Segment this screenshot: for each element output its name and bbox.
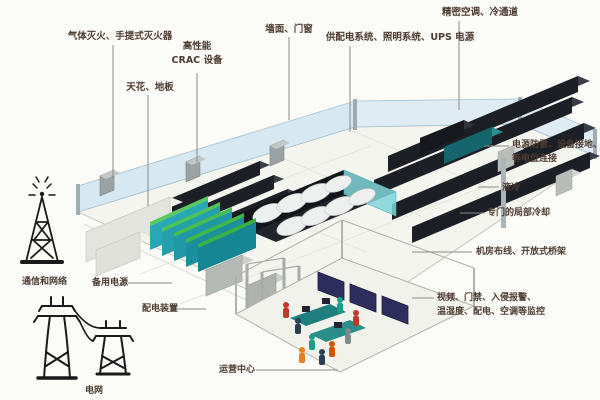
- label-comm-network: 通信和网络: [22, 275, 67, 289]
- label-liquid-cooling: 液冷: [502, 181, 520, 195]
- label-power-grid: 电网: [85, 384, 103, 398]
- label-cabling-open-tray: 机房布线、开放式桥架: [476, 245, 566, 259]
- label-precision-ac-cold-aisle: 精密空调、冷通道: [405, 6, 555, 20]
- label-monitoring: 视频、门禁、入侵报警、 温湿度、配电、空调等监控: [437, 291, 545, 319]
- label-backup-power: 备用电源: [92, 276, 128, 290]
- isometric-scene: [0, 0, 600, 400]
- label-operations-center: 运营中心: [219, 363, 255, 377]
- label-power-lighting-ups: 供配电系统、照明系统、UPS 电源: [285, 31, 515, 45]
- power-grid-pylon-icon: [34, 297, 133, 378]
- communication-tower-icon: [22, 177, 62, 262]
- label-lightning-grounding: 电源防雷、设备接地、 等电位连接: [512, 138, 600, 166]
- datacenter-architecture-diagram: 气体灭火、手提式灭火器 天花、地板 高性能 CRAC 设备 墙面、门窗 供配电系…: [0, 0, 600, 400]
- label-crac-equipment: 高性能 CRAC 设备: [152, 40, 242, 68]
- label-dedicated-local-cooling: 专门的局部冷却: [487, 206, 550, 220]
- label-power-distribution: 配电装置: [142, 302, 178, 316]
- label-ceiling-floor: 天花、地板: [105, 81, 195, 95]
